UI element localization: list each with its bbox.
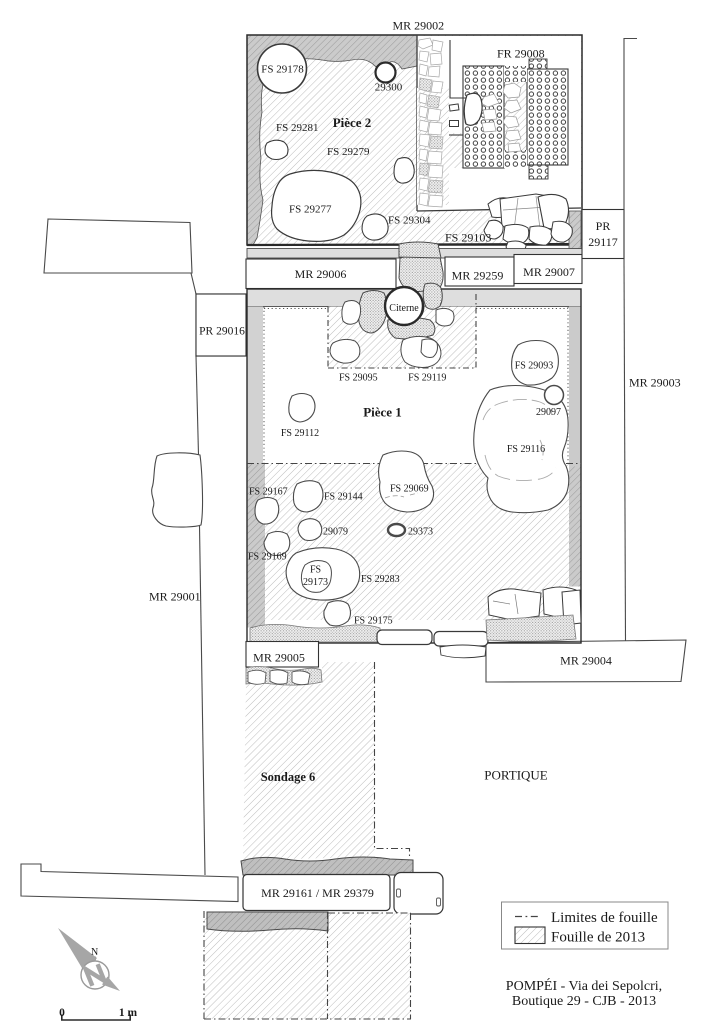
svg-text:MR 29161 / MR 29379: MR 29161 / MR 29379 <box>261 886 374 900</box>
svg-text:FS 29279: FS 29279 <box>327 146 370 158</box>
svg-text:MR 29259: MR 29259 <box>452 269 504 283</box>
svg-text:N: N <box>91 947 98 958</box>
svg-text:29079: 29079 <box>323 527 348 538</box>
svg-text:FS 29095: FS 29095 <box>339 373 378 384</box>
svg-text:FR 29008: FR 29008 <box>497 47 545 61</box>
svg-text:29173: 29173 <box>303 577 328 588</box>
svg-text:MR 29001: MR 29001 <box>149 590 201 604</box>
svg-text:FS 29069: FS 29069 <box>390 484 429 495</box>
svg-text:FS 29144: FS 29144 <box>324 492 363 503</box>
svg-text:MR 29002: MR 29002 <box>393 19 445 33</box>
svg-text:FS 29304: FS 29304 <box>388 215 431 227</box>
svg-text:0: 0 <box>59 1007 65 1019</box>
svg-text:29117: 29117 <box>588 235 618 249</box>
svg-text:FS 29112: FS 29112 <box>281 428 319 439</box>
svg-text:FS 29116: FS 29116 <box>507 444 545 455</box>
svg-text:FS 29169: FS 29169 <box>248 552 287 563</box>
svg-text:MR 29006: MR 29006 <box>295 267 347 281</box>
svg-text:FS 29167: FS 29167 <box>249 487 288 498</box>
svg-text:MR 29005: MR 29005 <box>253 651 305 665</box>
svg-text:FS 29178: FS 29178 <box>261 64 304 76</box>
svg-text:PORTIQUE: PORTIQUE <box>484 768 548 783</box>
svg-text:MR 29004: MR 29004 <box>560 654 612 668</box>
svg-text:29097: 29097 <box>536 407 561 418</box>
svg-text:PR: PR <box>596 219 611 233</box>
svg-text:Pièce 2: Pièce 2 <box>333 115 372 130</box>
svg-text:Fouille de 2013: Fouille de 2013 <box>551 930 645 946</box>
svg-text:FS 29103: FS 29103 <box>445 231 491 245</box>
svg-text:MR 29003: MR 29003 <box>629 376 681 390</box>
svg-text:Citerne: Citerne <box>389 303 419 314</box>
svg-text:FS 29277: FS 29277 <box>289 204 332 216</box>
svg-text:Limites de fouille: Limites de fouille <box>551 910 658 926</box>
svg-text:1 m: 1 m <box>119 1007 138 1019</box>
svg-text:Sondage 6: Sondage 6 <box>261 770 316 784</box>
svg-text:FS 29175: FS 29175 <box>354 616 393 627</box>
svg-text:29373: 29373 <box>408 527 433 538</box>
svg-text:Boutique 29 - CJB - 2013: Boutique 29 - CJB - 2013 <box>512 994 656 1009</box>
svg-text:29300: 29300 <box>375 82 403 94</box>
svg-text:FS 29093: FS 29093 <box>515 361 554 372</box>
svg-text:POMPÉI - Via dei Sepolcri,: POMPÉI - Via dei Sepolcri, <box>506 977 662 994</box>
svg-text:FS 29119: FS 29119 <box>408 373 446 384</box>
svg-text:Pièce 1: Pièce 1 <box>363 405 402 420</box>
svg-text:FS: FS <box>310 565 321 576</box>
svg-text:MR 29007: MR 29007 <box>523 265 575 279</box>
svg-text:PR 29016: PR 29016 <box>199 326 245 338</box>
svg-text:FS 29281: FS 29281 <box>276 122 319 134</box>
svg-text:FS 29283: FS 29283 <box>361 574 400 585</box>
